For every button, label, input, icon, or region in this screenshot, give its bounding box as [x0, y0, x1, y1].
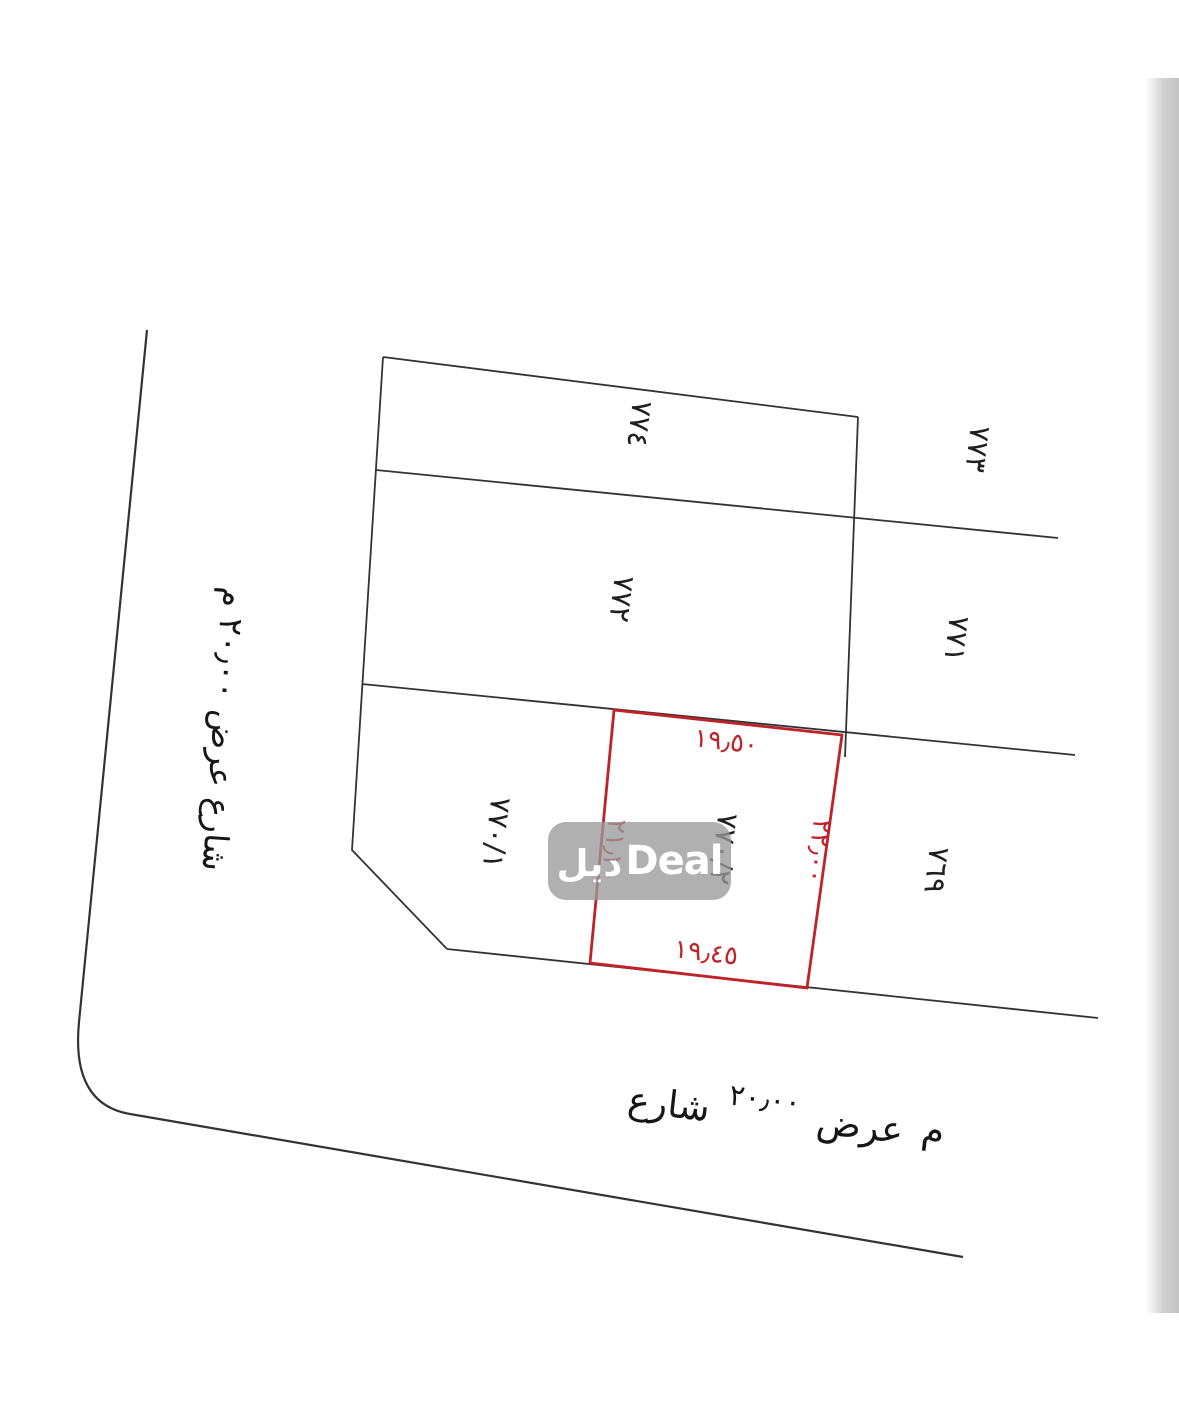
plot-label-769: ٧٦٩ [917, 845, 956, 896]
plot-label-771: ٧٧١ [937, 614, 976, 665]
page-edge-shadow [1146, 78, 1179, 1313]
street-bottom-word-sharia: شارع [626, 1078, 713, 1130]
watermark-latin-text: Deal [625, 838, 722, 884]
plot-label-772: ٧٧٢ [602, 574, 641, 625]
street-bottom-meter-unit: م [919, 1108, 947, 1153]
plot-label-774: ٧٧٤ [620, 399, 659, 450]
watermark-arabic-text: ديل [557, 842, 623, 885]
street-bottom-width-value: ٢٠٫٠٠ [728, 1078, 803, 1120]
watermark-badge: ديل Deal [548, 822, 731, 900]
plan-sheet: ٧٧٤ ٧٧٣ ٧٧٢ ٧٧١ ٧٧٠/١ ٧٧٠/٢ ٧٦٩ ١٩٫٥٠ ١٩… [0, 0, 1179, 1416]
boundary-lines-drawing [0, 0, 1179, 1416]
plot-label-773: ٧٧٣ [958, 424, 997, 475]
